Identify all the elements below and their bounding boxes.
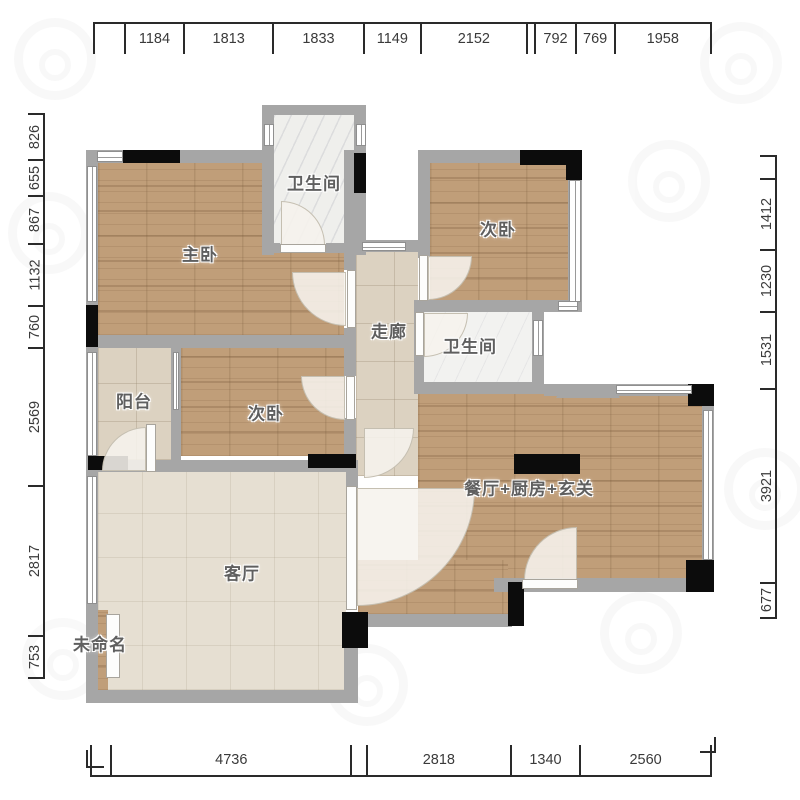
dimension-segment: 3921 (760, 388, 775, 582)
window[interactable] (569, 180, 581, 302)
dimension-value: 677 (760, 588, 776, 612)
floor-plan-canvas: 主卧 卫生间 次卧 走廊 卫生间 阳台 次卧 餐厅+厨房+玄关 客厅 未命名 1… (0, 0, 800, 800)
room-label-dining-kitchen-foyer: 餐厅+厨房+玄关 (464, 475, 594, 500)
dimension-segment: 1230 (760, 249, 775, 311)
column[interactable] (342, 612, 368, 648)
dimension-value: 4736 (215, 752, 247, 768)
door-leaf[interactable] (415, 312, 424, 356)
wall[interactable] (344, 328, 356, 376)
dimension-segment: 2152 (420, 24, 526, 54)
dimension-value: 2152 (458, 31, 490, 47)
dimension-value: 769 (583, 31, 607, 47)
dimension-segment: 1340 (510, 745, 579, 775)
window[interactable] (616, 385, 692, 394)
dimension-segment: 2818 (366, 745, 510, 775)
entry-door-leaf[interactable] (522, 579, 578, 589)
dimension-value: 1184 (139, 31, 170, 47)
dimension-chain-left: 826655867113276025692817753 (28, 113, 45, 679)
room-label-balcony: 阳台 (116, 388, 152, 413)
dimension-value: 2560 (629, 752, 661, 768)
wall[interactable] (262, 243, 280, 253)
dimension-value: 2569 (28, 401, 44, 433)
watermark-logo-icon (8, 192, 90, 274)
dimension-segment: 1184 (124, 24, 183, 54)
room-label-unnamed: 未命名 (73, 631, 127, 656)
dimension-value: 2817 (28, 545, 44, 577)
dimension-segment: 1132 (28, 243, 43, 305)
dimension-segment: 1531 (760, 311, 775, 388)
room-label-bedroom-middle: 次卧 (248, 400, 284, 425)
wall[interactable] (414, 382, 544, 394)
window[interactable] (356, 124, 366, 146)
dimension-segment: 867 (28, 195, 43, 243)
dimension-value: 2818 (423, 752, 455, 768)
dimension-segment: 826 (28, 113, 43, 159)
watermark-logo-icon (700, 22, 782, 104)
wall[interactable] (86, 335, 356, 348)
room-label-bathroom-top: 卫生间 (287, 170, 341, 195)
dimension-segment (350, 745, 366, 775)
dimension-value: 1531 (760, 334, 776, 366)
dimension-segment (93, 24, 124, 54)
door-leaf[interactable] (419, 255, 428, 301)
room-label-master-bedroom: 主卧 (182, 241, 218, 266)
column[interactable] (686, 560, 714, 592)
dimension-segment: 760 (28, 305, 43, 347)
room-label-corridor: 走廊 (371, 318, 407, 343)
dimension-value: 1340 (529, 752, 561, 768)
dimension-value: 1412 (760, 198, 776, 230)
dimension-value: 1230 (760, 265, 776, 297)
column[interactable] (308, 454, 356, 468)
axis-bracket (700, 737, 716, 753)
dimension-value: 1958 (647, 31, 679, 47)
column[interactable] (566, 152, 582, 180)
axis-bracket (86, 750, 104, 768)
dimension-value: 792 (543, 31, 567, 47)
window[interactable] (87, 166, 97, 302)
dimension-chain-top: 118418131833114921527927691958 (93, 22, 712, 54)
dimension-value: 1132 (28, 259, 44, 290)
room-living-room[interactable] (98, 472, 346, 690)
dimension-value: 753 (28, 645, 44, 669)
watermark-logo-icon (628, 140, 710, 222)
window[interactable] (703, 410, 713, 560)
dimension-value: 1813 (213, 31, 245, 47)
dimension-segment: 677 (760, 582, 775, 617)
dimension-segment (526, 24, 535, 54)
window[interactable] (362, 242, 406, 251)
room-label-bedroom-top-right: 次卧 (480, 216, 516, 241)
dimension-segment: 2560 (579, 745, 710, 775)
dimension-segment: 655 (28, 159, 43, 196)
window[interactable] (97, 151, 123, 162)
watermark-logo-icon (600, 592, 682, 674)
dimension-value: 1149 (377, 31, 408, 47)
window[interactable] (87, 352, 97, 456)
wall[interactable] (352, 614, 512, 627)
kitchen-partition[interactable] (514, 454, 580, 474)
dimension-segment: 1412 (760, 178, 775, 249)
dimension-value: 867 (28, 208, 44, 232)
dimension-value: 3921 (760, 470, 776, 502)
balcony-glass-door[interactable] (173, 352, 179, 410)
window[interactable] (558, 301, 578, 311)
dimension-segment: 753 (28, 635, 43, 677)
dimension-segment: 792 (534, 24, 574, 54)
room-label-living-room: 客厅 (224, 560, 260, 585)
door-leaf[interactable] (347, 270, 356, 328)
door-leaf[interactable] (346, 486, 357, 610)
dimension-value: 655 (28, 166, 44, 190)
dimension-value: 760 (28, 315, 44, 339)
wall[interactable] (418, 150, 430, 258)
column[interactable] (354, 153, 366, 193)
dimension-segment: 4736 (110, 745, 350, 775)
dimension-segment: 2569 (28, 347, 43, 485)
dimension-value: 826 (28, 125, 44, 149)
door-leaf[interactable] (346, 376, 355, 420)
window[interactable] (264, 124, 274, 146)
dimension-segment: 1149 (363, 24, 420, 54)
dimension-segment: 1958 (614, 24, 710, 54)
room-label-bathroom-middle: 卫生间 (443, 333, 497, 358)
dimension-segment: 2817 (28, 485, 43, 636)
wall[interactable] (86, 690, 358, 703)
dimension-chain-right: 1412123015313921677 (760, 155, 777, 619)
dimension-chain-bottom: 4736281813402560 (90, 745, 712, 777)
column[interactable] (86, 305, 98, 347)
dimension-segment: 1813 (183, 24, 272, 54)
dimension-segment: 1833 (272, 24, 362, 54)
dimension-segment: 769 (575, 24, 614, 54)
watermark-logo-icon (14, 18, 96, 100)
window[interactable] (533, 320, 543, 356)
bay-window-wall[interactable] (556, 384, 620, 398)
window[interactable] (87, 476, 97, 604)
column[interactable] (123, 150, 180, 163)
door-leaf[interactable] (280, 244, 326, 253)
door-leaf[interactable] (146, 424, 156, 472)
dimension-segment (760, 155, 775, 178)
dimension-value: 1833 (302, 31, 334, 47)
wall[interactable] (262, 105, 366, 115)
